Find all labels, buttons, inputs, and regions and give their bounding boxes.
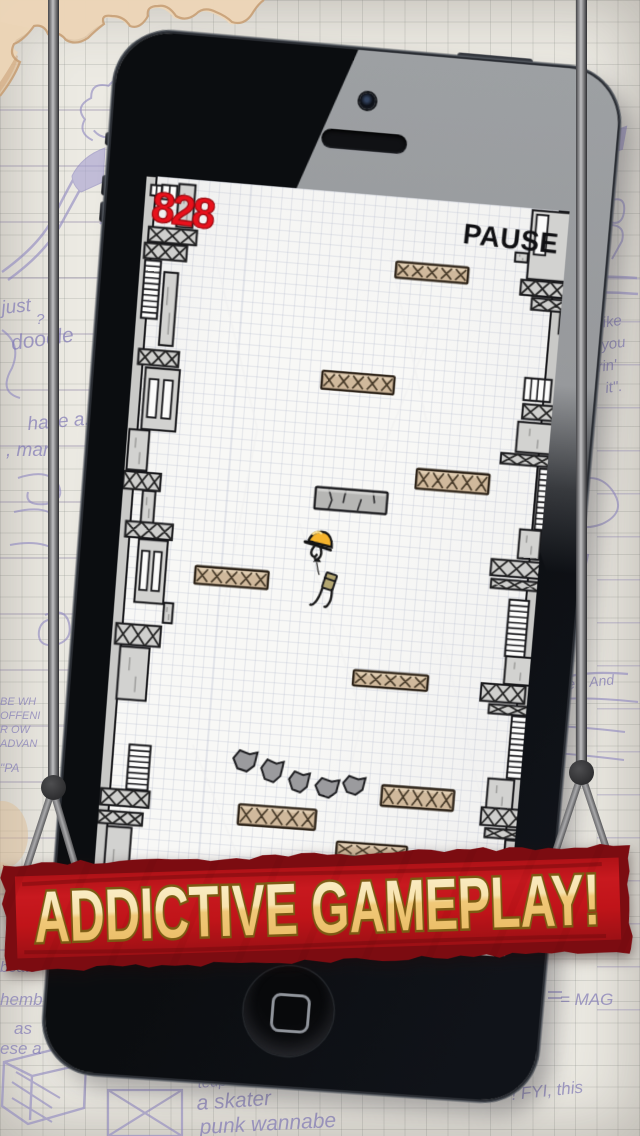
svg-text:you: you: [599, 334, 627, 354]
svg-text:ese a: ese a: [0, 1039, 42, 1058]
svg-text:rin': rin': [596, 356, 619, 376]
svg-text:hemb: hemb: [0, 990, 43, 1009]
svg-text:like: like: [598, 312, 623, 332]
svg-text:?: ?: [36, 311, 45, 328]
svg-text:BE WH: BE WH: [0, 696, 36, 708]
svg-text:a skater: a skater: [196, 1087, 273, 1115]
svg-text:it".: it".: [604, 378, 623, 397]
svg-text:"PA: "PA: [0, 761, 19, 775]
svg-text:= MAG: = MAG: [560, 990, 613, 1009]
svg-text:have a.: have a.: [27, 409, 91, 435]
svg-text:ADVAN: ADVAN: [0, 738, 37, 750]
svg-text:OFFENI: OFFENI: [0, 710, 40, 722]
svg-text:doodle: doodle: [9, 323, 75, 355]
svg-text:R OW: R OW: [0, 724, 32, 736]
svg-text:just: just: [0, 295, 33, 319]
svg-text:as: as: [14, 1019, 32, 1038]
svg-text:828: 828: [149, 183, 218, 239]
